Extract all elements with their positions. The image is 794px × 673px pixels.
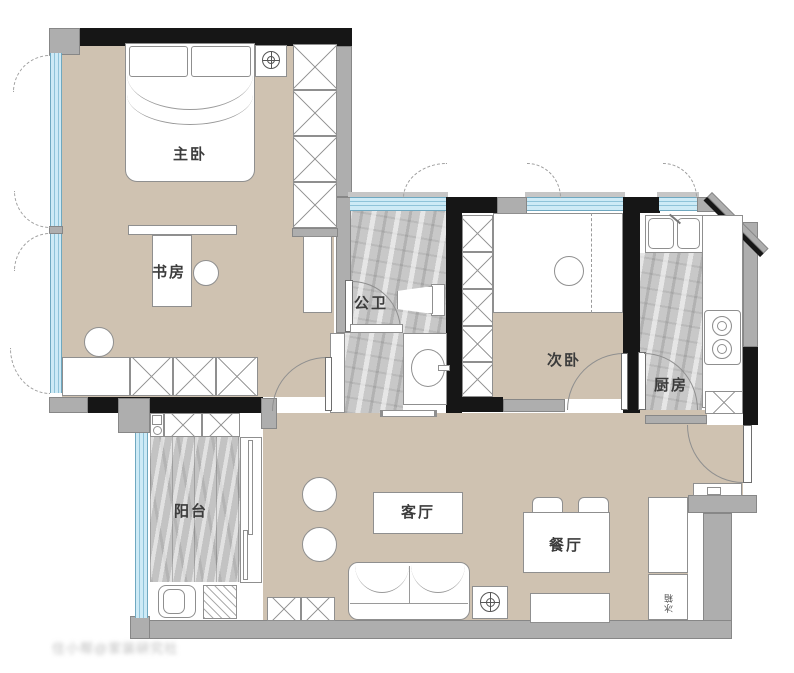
window-kitchen-top (659, 197, 697, 211)
wall-left-bottom-block (49, 397, 88, 413)
living-low-cabinet-x2 (301, 597, 335, 621)
wall-top-seg-kitchen-left (640, 197, 660, 213)
bathroom-threshold (380, 410, 437, 417)
lamp-icon-master (262, 51, 280, 69)
study-shelf-panel (303, 236, 332, 313)
fridge-label: 冰箱 (662, 583, 674, 613)
casement-arc-top-3 (663, 163, 697, 198)
sofa-center-line (409, 566, 410, 603)
sofa-seat-line (350, 603, 468, 604)
casement-arc-top-2 (527, 163, 561, 198)
wall-entry-step-h (688, 495, 757, 513)
kitchen-end-cabinet (705, 391, 743, 414)
wall-living-top (448, 397, 503, 412)
casement-arc-left-1 (13, 55, 50, 92)
toilet-tank (431, 284, 445, 316)
master-pillow-left (129, 46, 188, 77)
study-desk-top (128, 225, 237, 235)
wall-kitchen-right-lower (743, 347, 758, 425)
study-stool (84, 327, 114, 357)
bed2-wardrobe-cell5 (462, 362, 493, 397)
room-label-second-bedroom: 次卧 (534, 351, 594, 371)
casement-arc-top-1 (403, 163, 447, 198)
living-pouf-1 (302, 477, 337, 512)
wall-bottom (131, 620, 732, 639)
balcony-cabinet-x2 (202, 413, 240, 437)
room-label-dining-room: 餐厅 (536, 536, 596, 556)
casement-arc-left-4 (10, 348, 50, 394)
room-label-master-bedroom: 主卧 (160, 145, 220, 165)
wall-balcony-bottomleft (130, 616, 150, 639)
balcony-hook-1 (152, 415, 162, 425)
wall-balcony-topleft (118, 398, 150, 433)
floor-lamp-icon (480, 592, 500, 612)
laundry-sink-basin (163, 589, 185, 614)
master-wardrobe-cell4 (293, 182, 337, 228)
room-label-balcony: 阳台 (161, 502, 221, 522)
stove-burner-1 (712, 316, 732, 336)
balcony-sliding-rail-1 (248, 440, 253, 535)
wall-corner-topleft (49, 28, 80, 55)
balcony-hook-2 (153, 426, 162, 435)
door-leaf-study (325, 357, 332, 411)
casement-arc-left-2 (14, 191, 50, 228)
study-cabinet-x3 (216, 357, 258, 396)
floor-bathroom-dry (345, 333, 403, 413)
wall-bathroom-right (446, 197, 462, 413)
window-bed2-top (527, 197, 623, 211)
study-cabinet-x2 (173, 357, 216, 396)
living-low-cabinet-x1 (267, 597, 301, 621)
wall-right-lower (703, 513, 732, 622)
study-cabinet-x1 (130, 357, 173, 396)
bed2-platform-divider (591, 213, 592, 313)
door-leaf-entry (743, 425, 752, 483)
room-label-study: 书房 (139, 263, 199, 283)
dining-side-cabinet (648, 497, 688, 573)
entry-threshold-handle (707, 487, 721, 495)
casement-arc-left-3 (14, 233, 50, 271)
wall-window-divider-left (49, 226, 63, 234)
wall-study-bottom (88, 397, 263, 413)
master-wardrobe-cell2 (293, 90, 337, 136)
bed2-wardrobe-cell2 (462, 252, 493, 289)
balcony-sliding-rail-2 (243, 530, 248, 580)
wall-bed2-bottom-threshold (503, 399, 565, 412)
room-label-bathroom: 公卫 (341, 294, 401, 314)
master-pillow-right (191, 46, 251, 77)
bed2-wardrobe-cell4 (462, 326, 493, 362)
stove-burner-2 (712, 339, 732, 359)
master-wardrobe-cell3 (293, 136, 337, 182)
window-bathroom-top (350, 197, 446, 211)
tv-bench (530, 593, 610, 623)
bed2-wardrobe-cell3 (462, 289, 493, 326)
wall-top-seg-bed2-left (446, 197, 497, 213)
kitchen-sink-basin-left (648, 218, 674, 249)
room-label-living-room: 客厅 (388, 503, 448, 523)
window-balcony-left (135, 433, 148, 618)
balcony-cabinet-x1 (164, 413, 202, 437)
floor-plan: 主卧 书房 公卫 次卧 厨房 (0, 0, 794, 673)
wall-kitchen-bottom-threshold (645, 415, 707, 424)
bathroom-zone-divider (350, 324, 403, 333)
window-master-left-upper (50, 53, 62, 226)
room-label-kitchen: 厨房 (641, 376, 701, 396)
basin-faucet (438, 365, 450, 371)
wall-study-bath-lower (330, 333, 345, 413)
bed2-wardrobe-cell1 (462, 215, 493, 252)
master-wardrobe-cell1 (293, 44, 337, 90)
living-pouf-2 (302, 527, 337, 562)
door-leaf-bed2 (621, 353, 628, 410)
window-master-left-lower (50, 234, 62, 393)
bed2-round-cushion (554, 256, 584, 286)
study-cabinet-plain (62, 357, 130, 396)
watermark: 住小帮@家装研究社 (52, 638, 282, 662)
washing-machine (203, 585, 237, 619)
